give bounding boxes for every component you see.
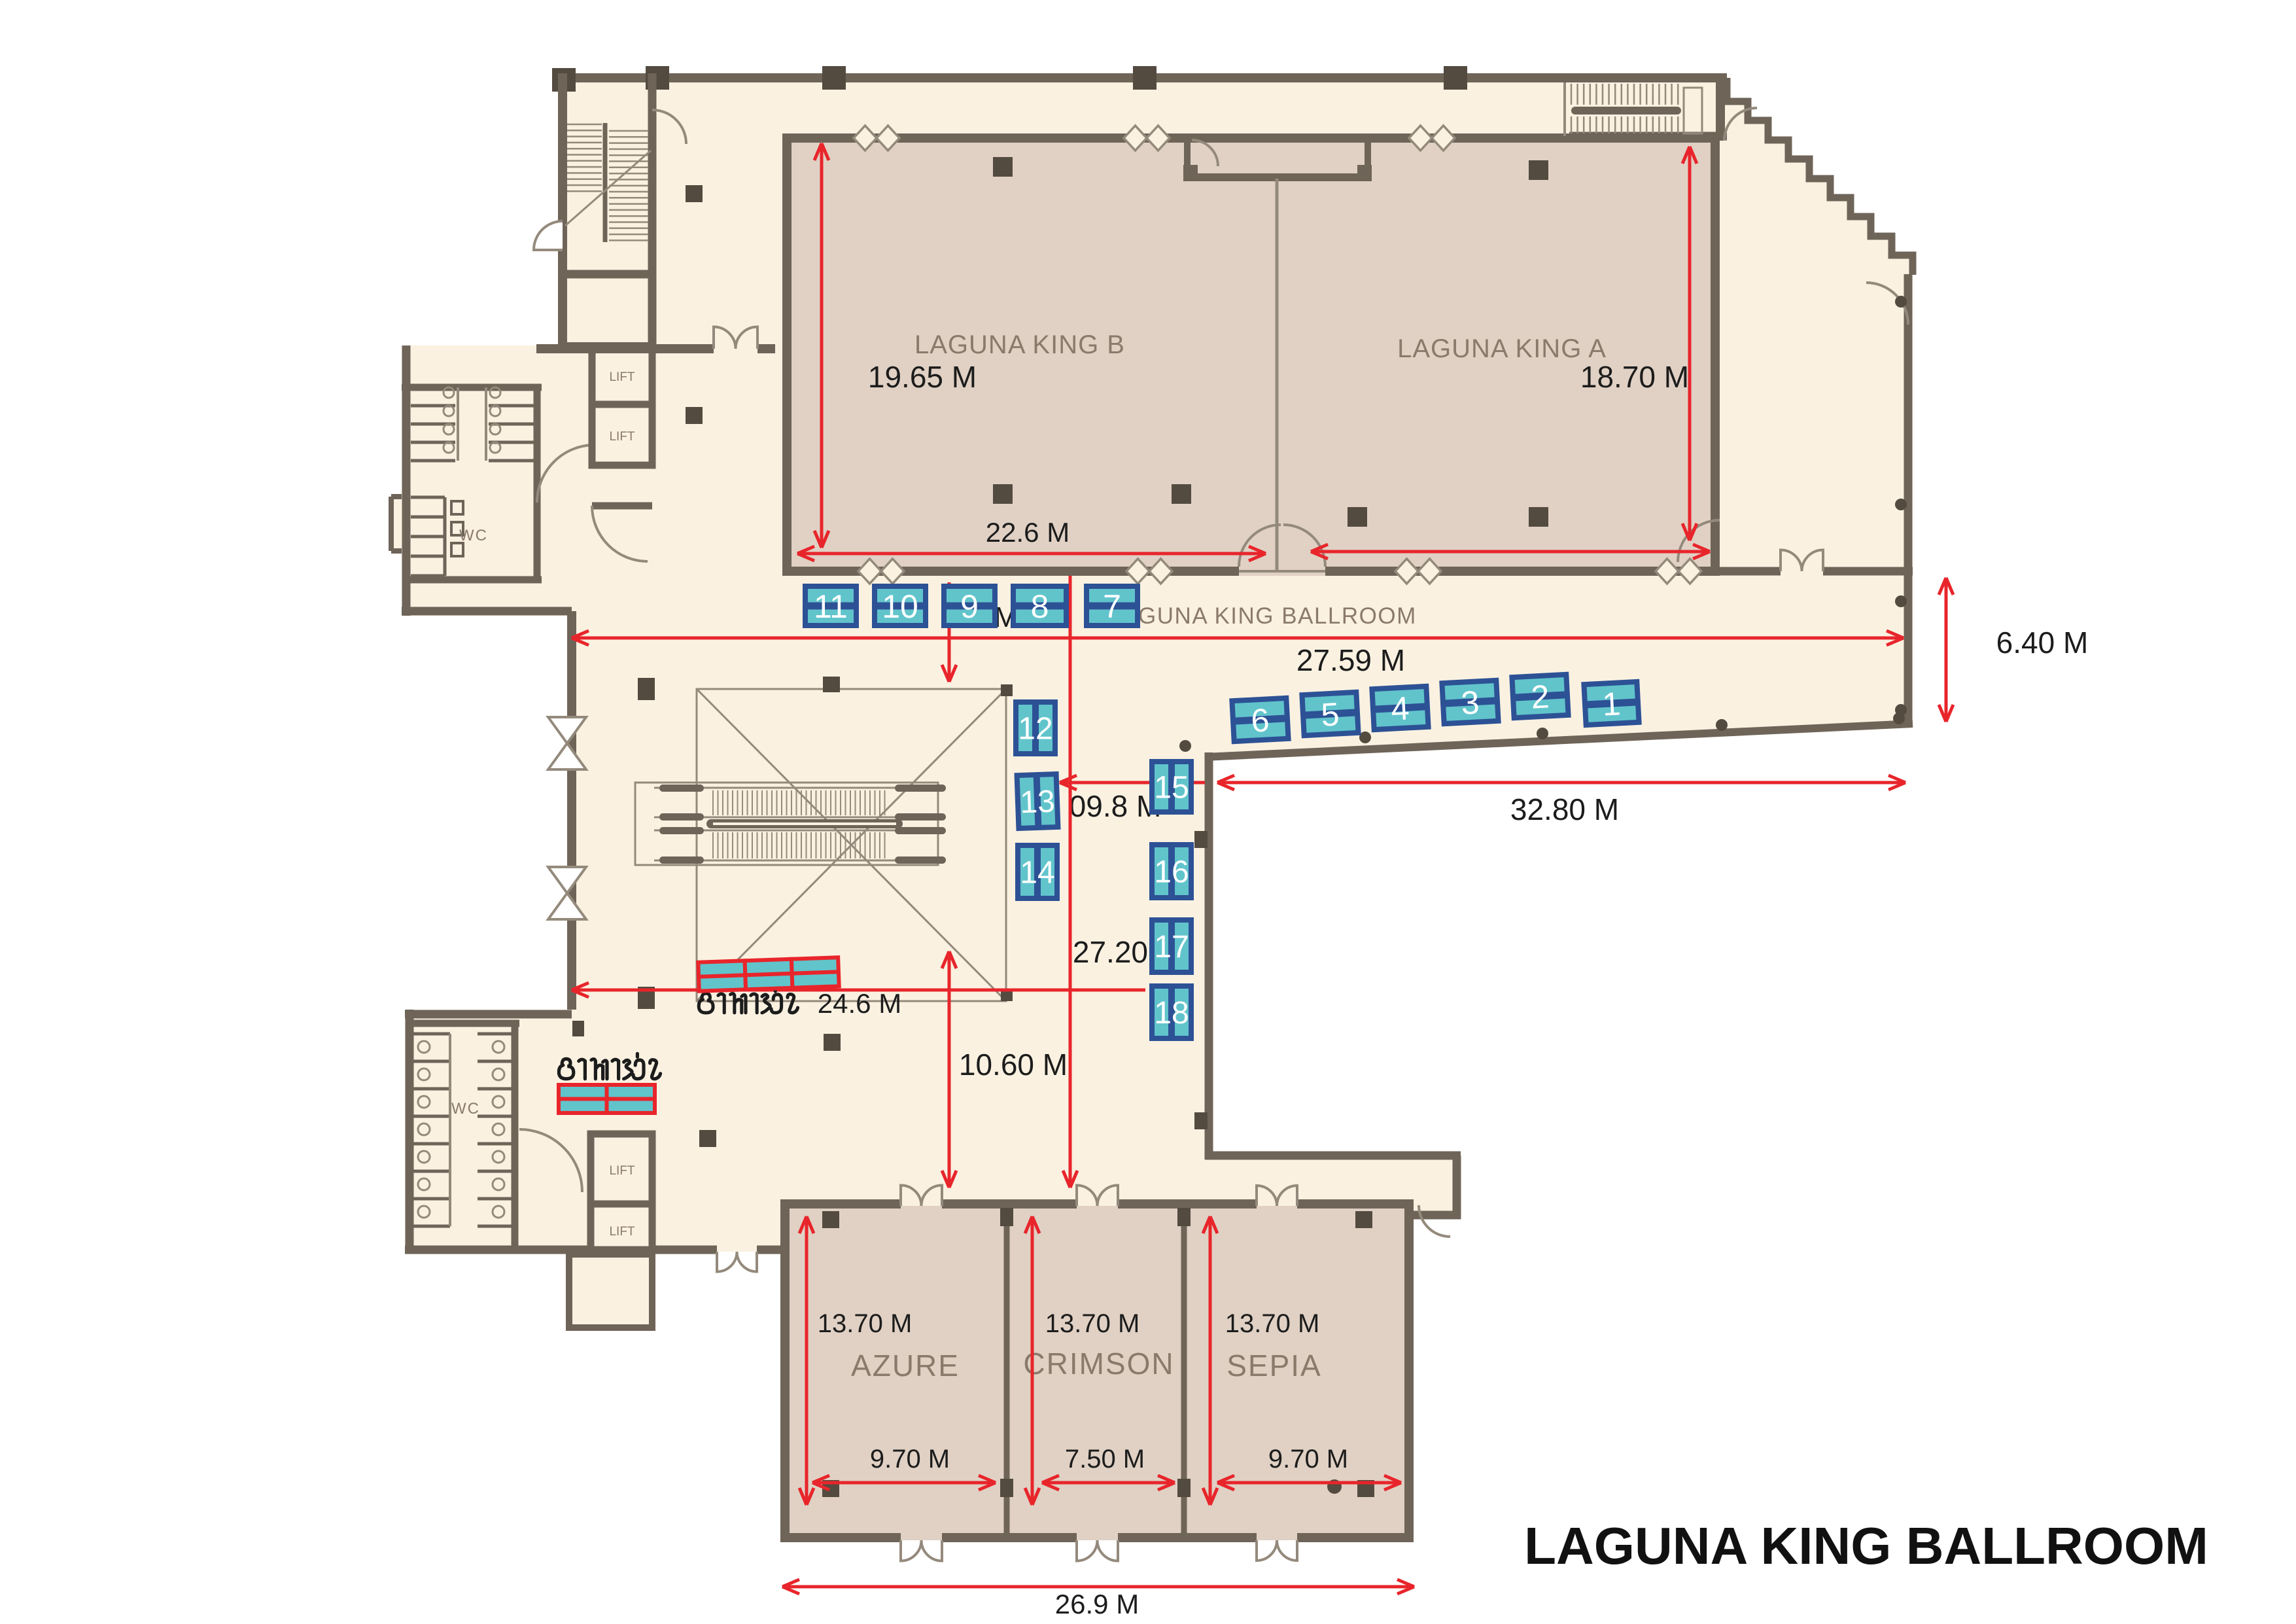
svg-text:6: 6 <box>1250 701 1270 739</box>
svg-text:19.65 M: 19.65 M <box>868 360 977 394</box>
svg-text:09.8 M: 09.8 M <box>1070 789 1162 823</box>
svg-text:12: 12 <box>1018 712 1052 747</box>
svg-text:10.60 M: 10.60 M <box>959 1048 1068 1082</box>
svg-text:18.70 M: 18.70 M <box>1580 360 1689 394</box>
svg-text:LAGUNA KING B: LAGUNA KING B <box>914 330 1125 359</box>
svg-text:22.6 M: 22.6 M <box>986 517 1070 548</box>
svg-text:2: 2 <box>1530 678 1550 715</box>
svg-text:16: 16 <box>1154 855 1189 890</box>
svg-text:LIFT: LIFT <box>609 370 635 384</box>
svg-text:LIFT: LIFT <box>609 1225 635 1239</box>
svg-text:13: 13 <box>1019 785 1055 821</box>
svg-text:26.9 M: 26.9 M <box>1055 1589 1139 1619</box>
svg-text:10: 10 <box>882 588 918 625</box>
svg-text:LAGUNA KING A: LAGUNA KING A <box>1397 334 1607 363</box>
svg-text:SEPIA: SEPIA <box>1226 1349 1322 1383</box>
svg-text:3: 3 <box>1460 684 1480 721</box>
svg-text:1: 1 <box>1601 685 1622 722</box>
svg-text:5: 5 <box>1320 696 1340 733</box>
svg-text:WC: WC <box>451 1100 480 1118</box>
svg-text:7.50 M: 7.50 M <box>1065 1445 1145 1474</box>
svg-text:LIFT: LIFT <box>609 430 635 444</box>
svg-text:LAGUNA KING BALLROOM: LAGUNA KING BALLROOM <box>1524 1517 2208 1575</box>
svg-text:AZURE: AZURE <box>851 1349 960 1383</box>
svg-text:15: 15 <box>1154 771 1189 805</box>
svg-text:8: 8 <box>1031 588 1049 625</box>
svg-text:4: 4 <box>1390 690 1410 727</box>
svg-text:24.6 M: 24.6 M <box>818 988 901 1019</box>
svg-text:14: 14 <box>1020 856 1054 891</box>
svg-text:13.70 M: 13.70 M <box>818 1309 913 1338</box>
svg-text:17: 17 <box>1154 930 1189 964</box>
svg-text:9: 9 <box>960 588 979 625</box>
svg-text:9.70 M: 9.70 M <box>1268 1445 1348 1474</box>
svg-text:11: 11 <box>814 588 848 625</box>
svg-text:27.59 M: 27.59 M <box>1296 643 1405 677</box>
svg-text:13.70 M: 13.70 M <box>1045 1309 1140 1338</box>
svg-text:WC: WC <box>459 527 488 544</box>
svg-text:6.40 M: 6.40 M <box>1996 626 2089 660</box>
svg-text:LIFT: LIFT <box>609 1164 635 1178</box>
svg-text:18: 18 <box>1154 996 1189 1031</box>
svg-text:13.70 M: 13.70 M <box>1225 1309 1320 1338</box>
svg-text:LAGUNA KING BALLROOM: LAGUNA KING BALLROOM <box>1108 603 1417 629</box>
svg-text:32.80 M: 32.80 M <box>1510 792 1619 826</box>
svg-text:7: 7 <box>1103 588 1121 625</box>
svg-text:9.70 M: 9.70 M <box>870 1445 950 1474</box>
svg-text:CRIMSON: CRIMSON <box>1023 1347 1174 1381</box>
